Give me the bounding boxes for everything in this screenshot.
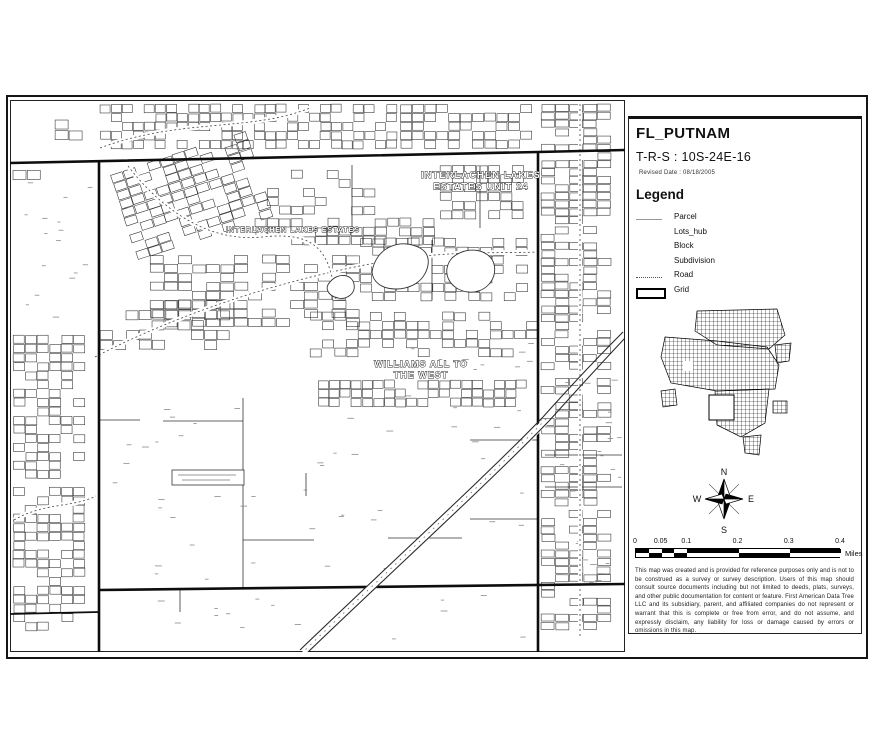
scale-segment bbox=[636, 553, 649, 557]
scale-tick-labels: 00.050.10.20.30.4 bbox=[635, 538, 840, 547]
legend-list: ParcelLots_hubBlockSubdivisionRoadGrid bbox=[636, 212, 786, 299]
legend-symbol-none bbox=[636, 244, 662, 252]
scale-segment bbox=[739, 553, 790, 557]
county-locator-inset bbox=[657, 305, 797, 465]
legend-item-label: Block bbox=[674, 241, 694, 250]
legend-symbol-none bbox=[636, 230, 662, 238]
scale-segment bbox=[790, 553, 841, 557]
compass-label-n: N bbox=[721, 467, 728, 477]
disclaimer-text: This map was created and is provided for… bbox=[635, 567, 854, 636]
legend-symbol-none bbox=[636, 259, 662, 267]
legend-item-label: Subdivision bbox=[674, 256, 715, 265]
scale-segment bbox=[662, 553, 675, 557]
legend-item-grid: Grid bbox=[636, 285, 786, 300]
inset-highlight-square bbox=[709, 395, 734, 420]
scale-tick-label: 0.05 bbox=[654, 538, 668, 545]
legend-item-lots_hub: Lots_hub bbox=[636, 227, 786, 242]
scale-tick-label: 0.3 bbox=[784, 538, 794, 545]
inset-hole bbox=[683, 361, 693, 371]
page: INTERLACHEN LAKESESTATES UNIT 24INTERLAC… bbox=[0, 0, 875, 749]
scale-segment bbox=[649, 553, 662, 557]
scale-bar: 00.050.10.20.30.4 Miles bbox=[635, 538, 861, 566]
compass-label-s: S bbox=[721, 525, 727, 535]
legend-item-label: Lots_hub bbox=[674, 227, 707, 236]
inset-blob bbox=[775, 343, 791, 363]
info-panel: FL_PUTNAM T-R-S : 10S-24E-16 Revised Dat… bbox=[628, 116, 862, 634]
legend-title: Legend bbox=[636, 187, 684, 202]
compass-label-e: E bbox=[748, 494, 754, 504]
scale-segment bbox=[674, 553, 687, 557]
plat-label: INTERLACHEN LAKES ESTATES bbox=[226, 227, 360, 234]
map-border bbox=[11, 101, 625, 652]
compass-rose: N S E W bbox=[689, 465, 759, 537]
scale-tick-label: 0 bbox=[633, 538, 637, 545]
scale-tick-label: 0.2 bbox=[733, 538, 743, 545]
legend-item-block: Block bbox=[636, 241, 786, 256]
inset-blob bbox=[743, 435, 761, 455]
legend-item-label: Road bbox=[674, 270, 693, 279]
scale-segment bbox=[687, 553, 738, 557]
scale-unit: Miles bbox=[845, 549, 863, 558]
legend-item-parcel: Parcel bbox=[636, 212, 786, 227]
legend-item-road: Road bbox=[636, 270, 786, 285]
legend-symbol-thick-rect bbox=[636, 288, 666, 299]
plat-label: THE WEST bbox=[394, 370, 449, 380]
scale-tick-label: 0.1 bbox=[681, 538, 691, 545]
legend-item-label: Grid bbox=[674, 285, 689, 294]
trs-label: T-R-S : 10S-24E-16 bbox=[636, 150, 751, 164]
page-title: FL_PUTNAM bbox=[636, 125, 730, 142]
inset-blob bbox=[661, 389, 677, 407]
scale-bar-graphic bbox=[635, 548, 840, 558]
revised-date: Revised Date : 08/18/2005 bbox=[639, 170, 715, 176]
legend-item-subdivision: Subdivision bbox=[636, 256, 786, 271]
scale-tick-label: 0.4 bbox=[835, 538, 845, 545]
legend-item-label: Parcel bbox=[674, 212, 697, 221]
map-canvas: INTERLACHEN LAKESESTATES UNIT 24INTERLAC… bbox=[10, 100, 625, 652]
inset-blob bbox=[773, 401, 787, 413]
plat-label: INTERLACHEN LAKES bbox=[421, 170, 541, 181]
plat-label: ESTATES UNIT 24 bbox=[433, 182, 528, 193]
compass-label-w: W bbox=[693, 494, 702, 504]
plat-label: WILLIAMS ALL TO bbox=[374, 359, 468, 369]
